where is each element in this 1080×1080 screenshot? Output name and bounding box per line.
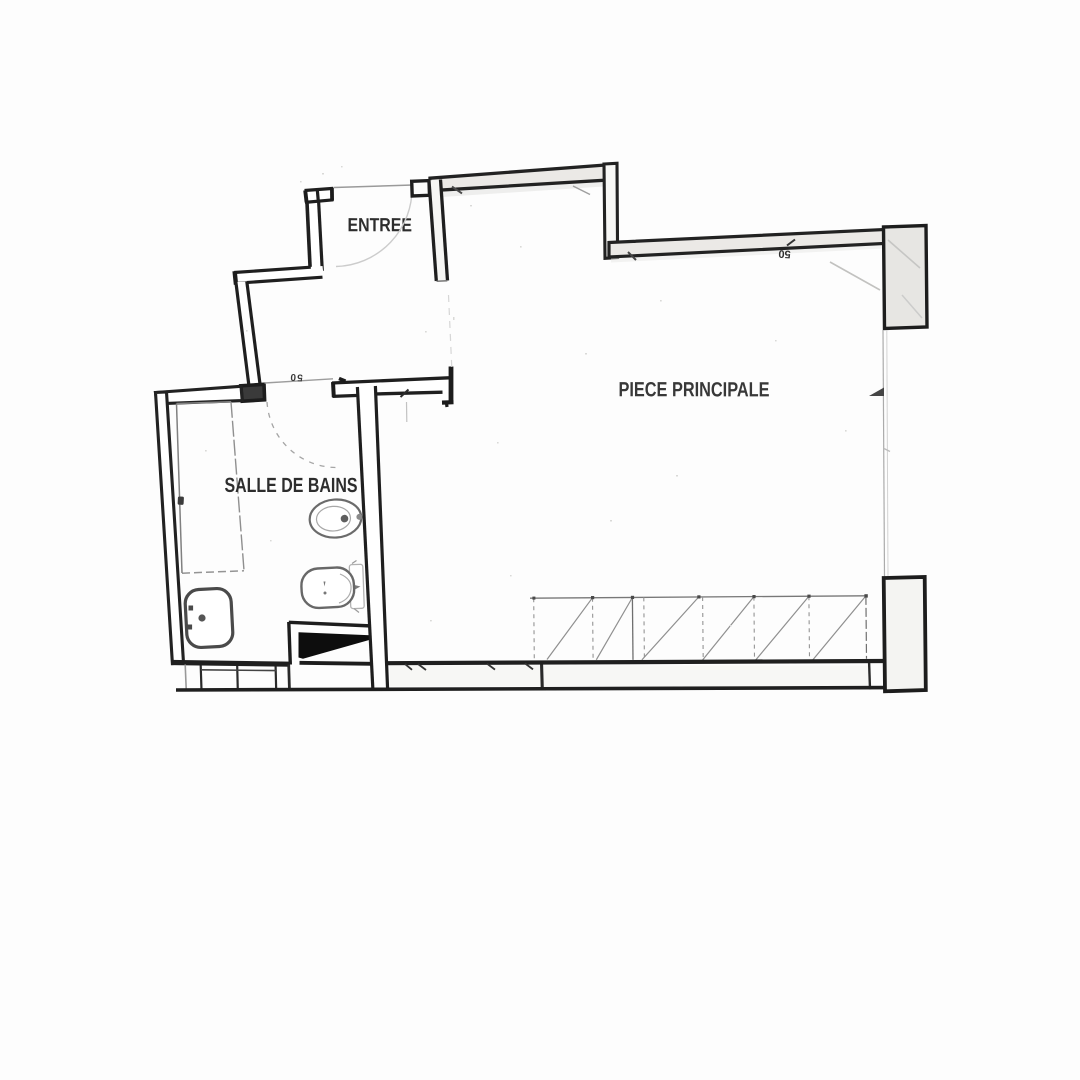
svg-text:SALLE DE BAINS: SALLE DE BAINS bbox=[224, 474, 357, 497]
svg-text:50: 50 bbox=[778, 247, 791, 260]
svg-text:50: 50 bbox=[289, 371, 303, 383]
svg-text:PIECE PRINCIPALE: PIECE PRINCIPALE bbox=[618, 378, 769, 401]
